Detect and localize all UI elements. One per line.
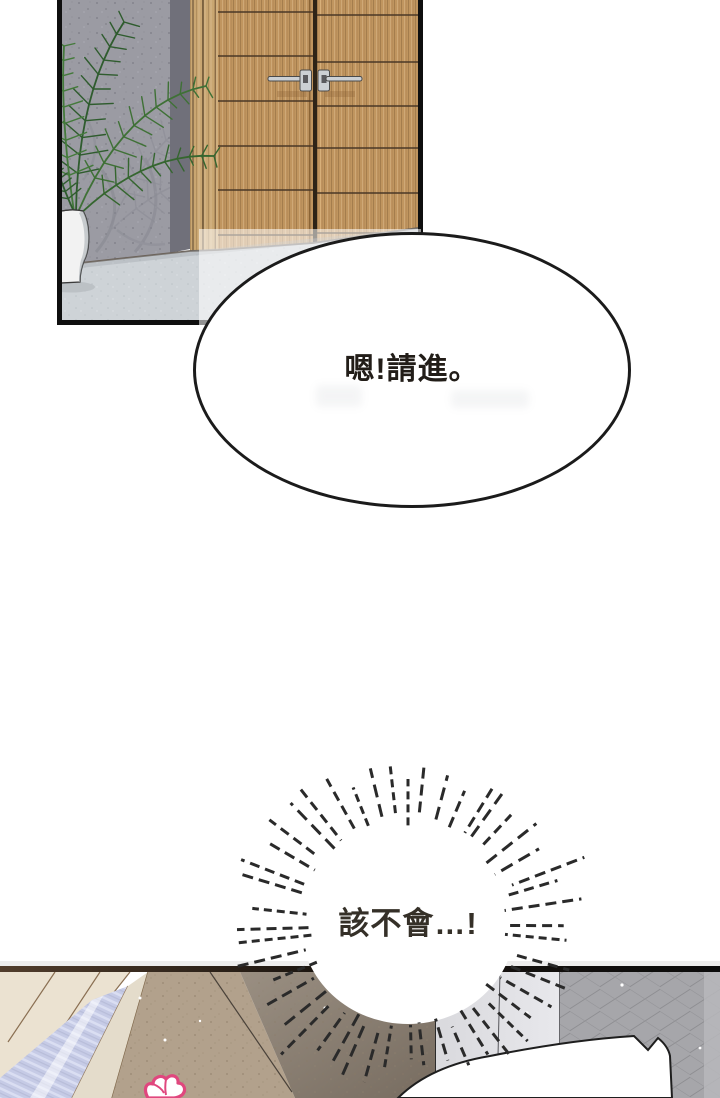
speech-bubble-oval: 嗯!請進。 bbox=[193, 232, 631, 508]
door-gap bbox=[313, 0, 317, 254]
door-frame bbox=[190, 0, 218, 252]
erased-text-smudge bbox=[316, 385, 362, 407]
wooden-double-door bbox=[218, 0, 418, 256]
erased-text-smudge bbox=[451, 390, 529, 408]
bubble-oval-text: 嗯!請進。 bbox=[345, 352, 480, 388]
comic-page: 嗯!請進。 bbox=[0, 0, 720, 1098]
stone-pillar-side bbox=[170, 0, 190, 253]
burst-bubble-text: 該不會…! bbox=[258, 905, 558, 942]
